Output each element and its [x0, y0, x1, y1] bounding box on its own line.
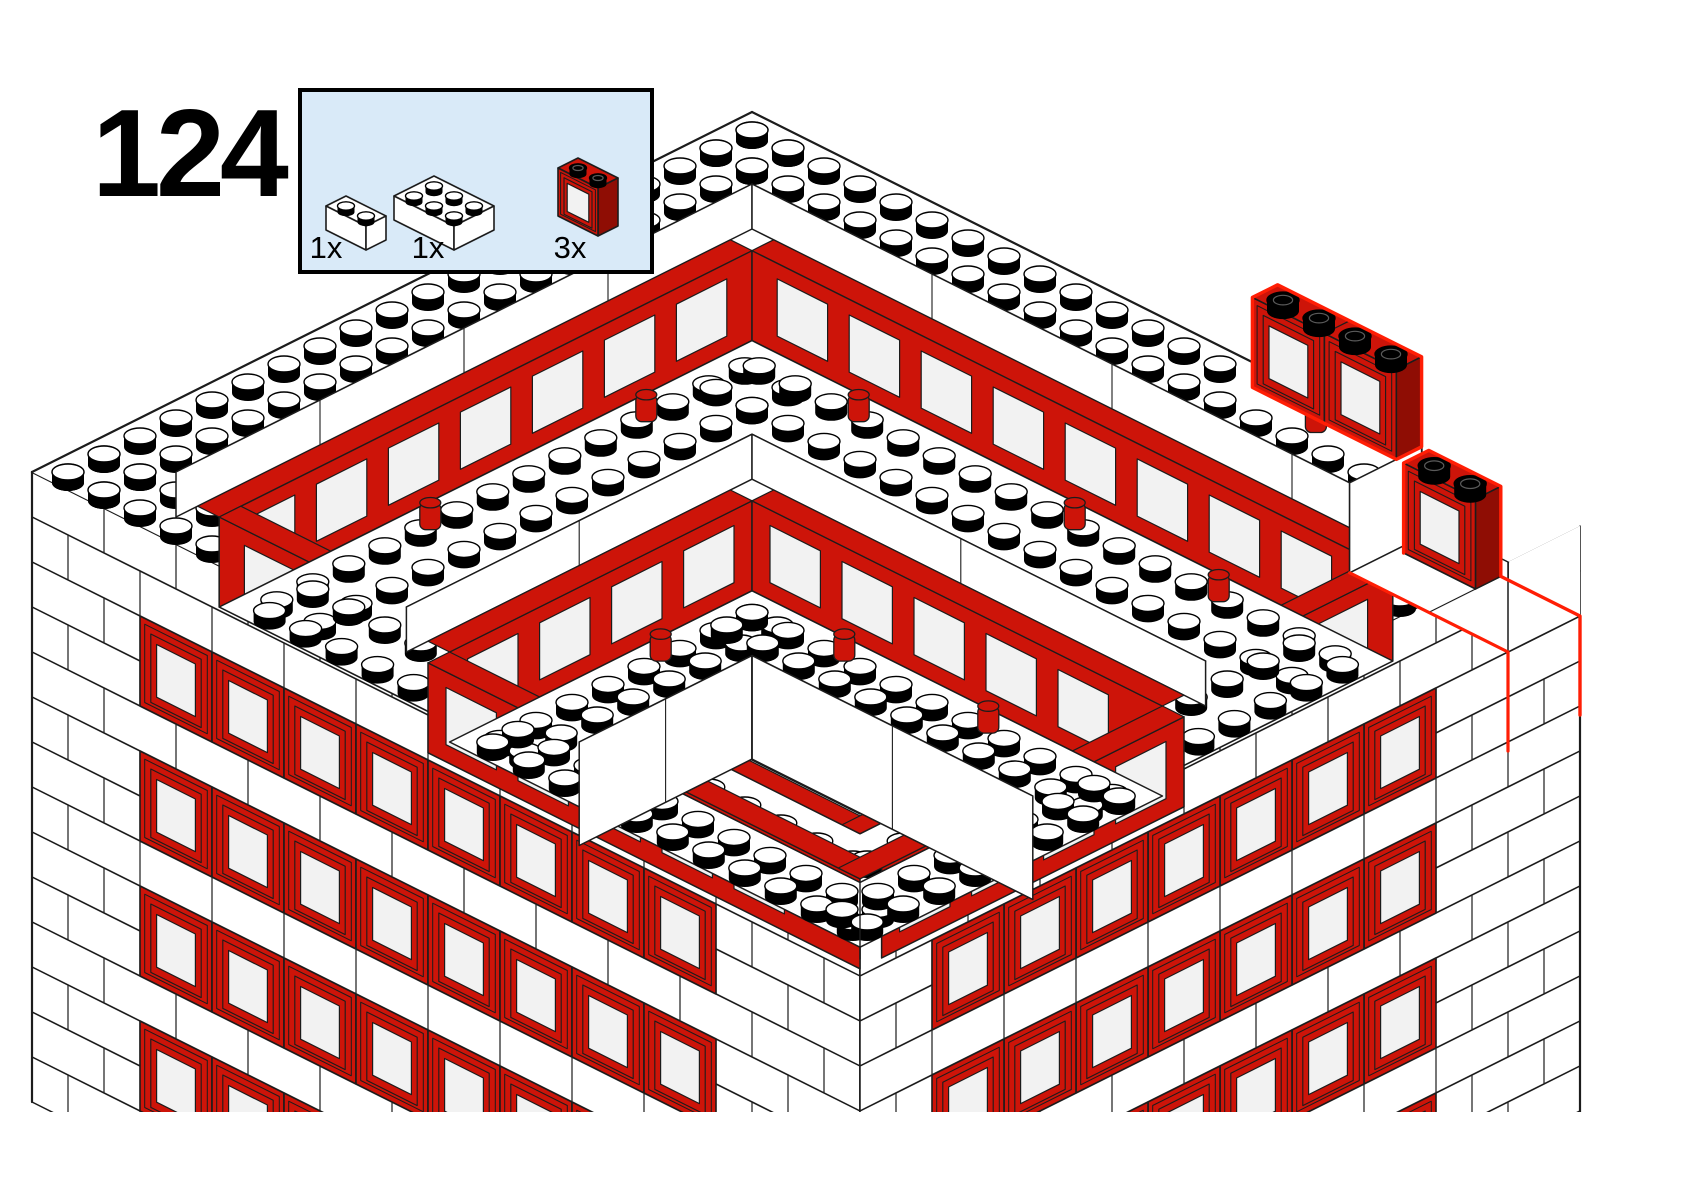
lego-instruction-illustration: 1x 1x 3x 124 [0, 0, 1684, 1192]
part-qty-3: 3x [554, 230, 587, 265]
part-qty-1: 1x [310, 230, 343, 265]
building-model [32, 112, 1580, 1192]
instruction-page: 1x 1x 3x 124 [0, 0, 1684, 1192]
parts-callout: 1x 1x 3x [300, 90, 652, 272]
part-qty-2: 1x [412, 230, 445, 265]
step-number: 124 [92, 85, 289, 223]
